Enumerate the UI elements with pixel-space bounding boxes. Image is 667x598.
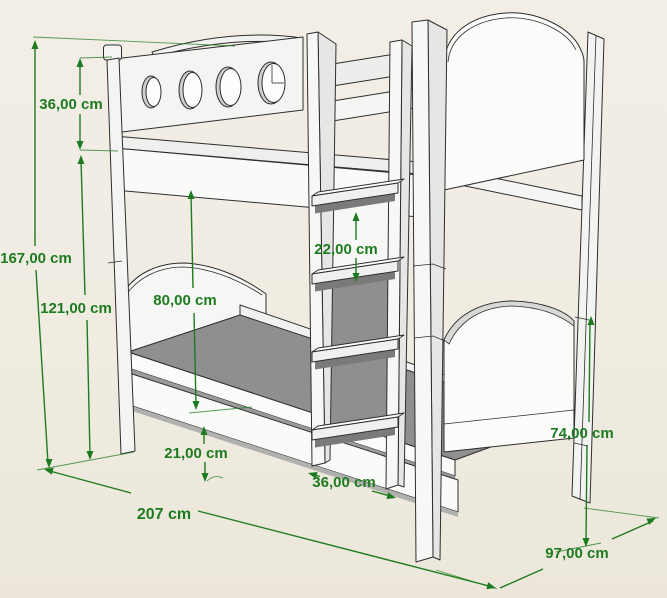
porthole-3 bbox=[216, 67, 241, 107]
dimension-upper-frame-height: 121,00 cm bbox=[40, 155, 112, 460]
dimension-drawing: 36,00 cm 167,00 cm 121,00 cm bbox=[0, 0, 667, 598]
dimension-label: 74,00 cm bbox=[550, 425, 613, 442]
dimension-bed-depth: 97,00 cm bbox=[436, 508, 659, 589]
porthole-4-clock bbox=[258, 62, 285, 104]
dimension-guardrail-height: 36,00 cm bbox=[39, 57, 118, 151]
dimension-label: 207 cm bbox=[137, 506, 191, 523]
dimension-label: 36,00 cm bbox=[39, 96, 102, 113]
upper-headboard bbox=[444, 13, 584, 190]
dimension-label: 22,00 cm bbox=[314, 241, 377, 258]
dimension-label: 80,00 cm bbox=[153, 292, 216, 309]
porthole-2 bbox=[179, 71, 202, 109]
bunk-bed-figure: 36,00 cm 167,00 cm 121,00 cm bbox=[0, 0, 667, 598]
dimension-label: 36,00 cm bbox=[312, 474, 375, 491]
dimension-label: 21,00 cm bbox=[164, 445, 227, 462]
dimension-label: 97,00 cm bbox=[545, 545, 608, 562]
porthole-1 bbox=[142, 76, 161, 108]
dimension-label: 167,00 cm bbox=[0, 250, 72, 267]
porthole-board bbox=[114, 37, 303, 133]
dimension-label: 121,00 cm bbox=[40, 300, 112, 317]
